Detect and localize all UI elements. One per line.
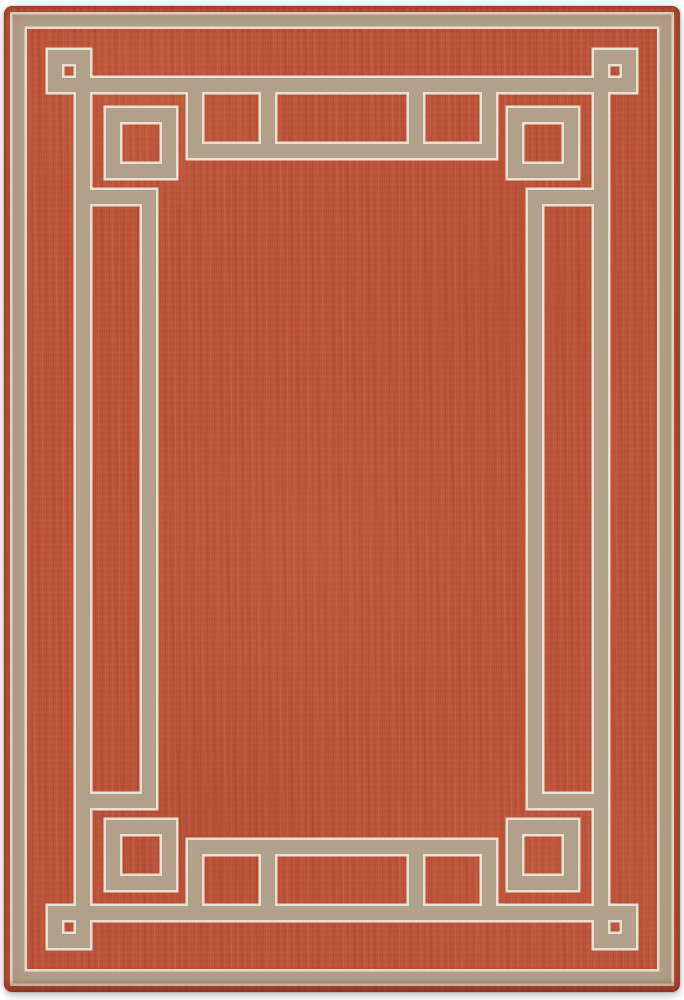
rug-border-pattern (4, 6, 680, 992)
rug (4, 6, 680, 992)
product-photo (0, 0, 684, 1000)
